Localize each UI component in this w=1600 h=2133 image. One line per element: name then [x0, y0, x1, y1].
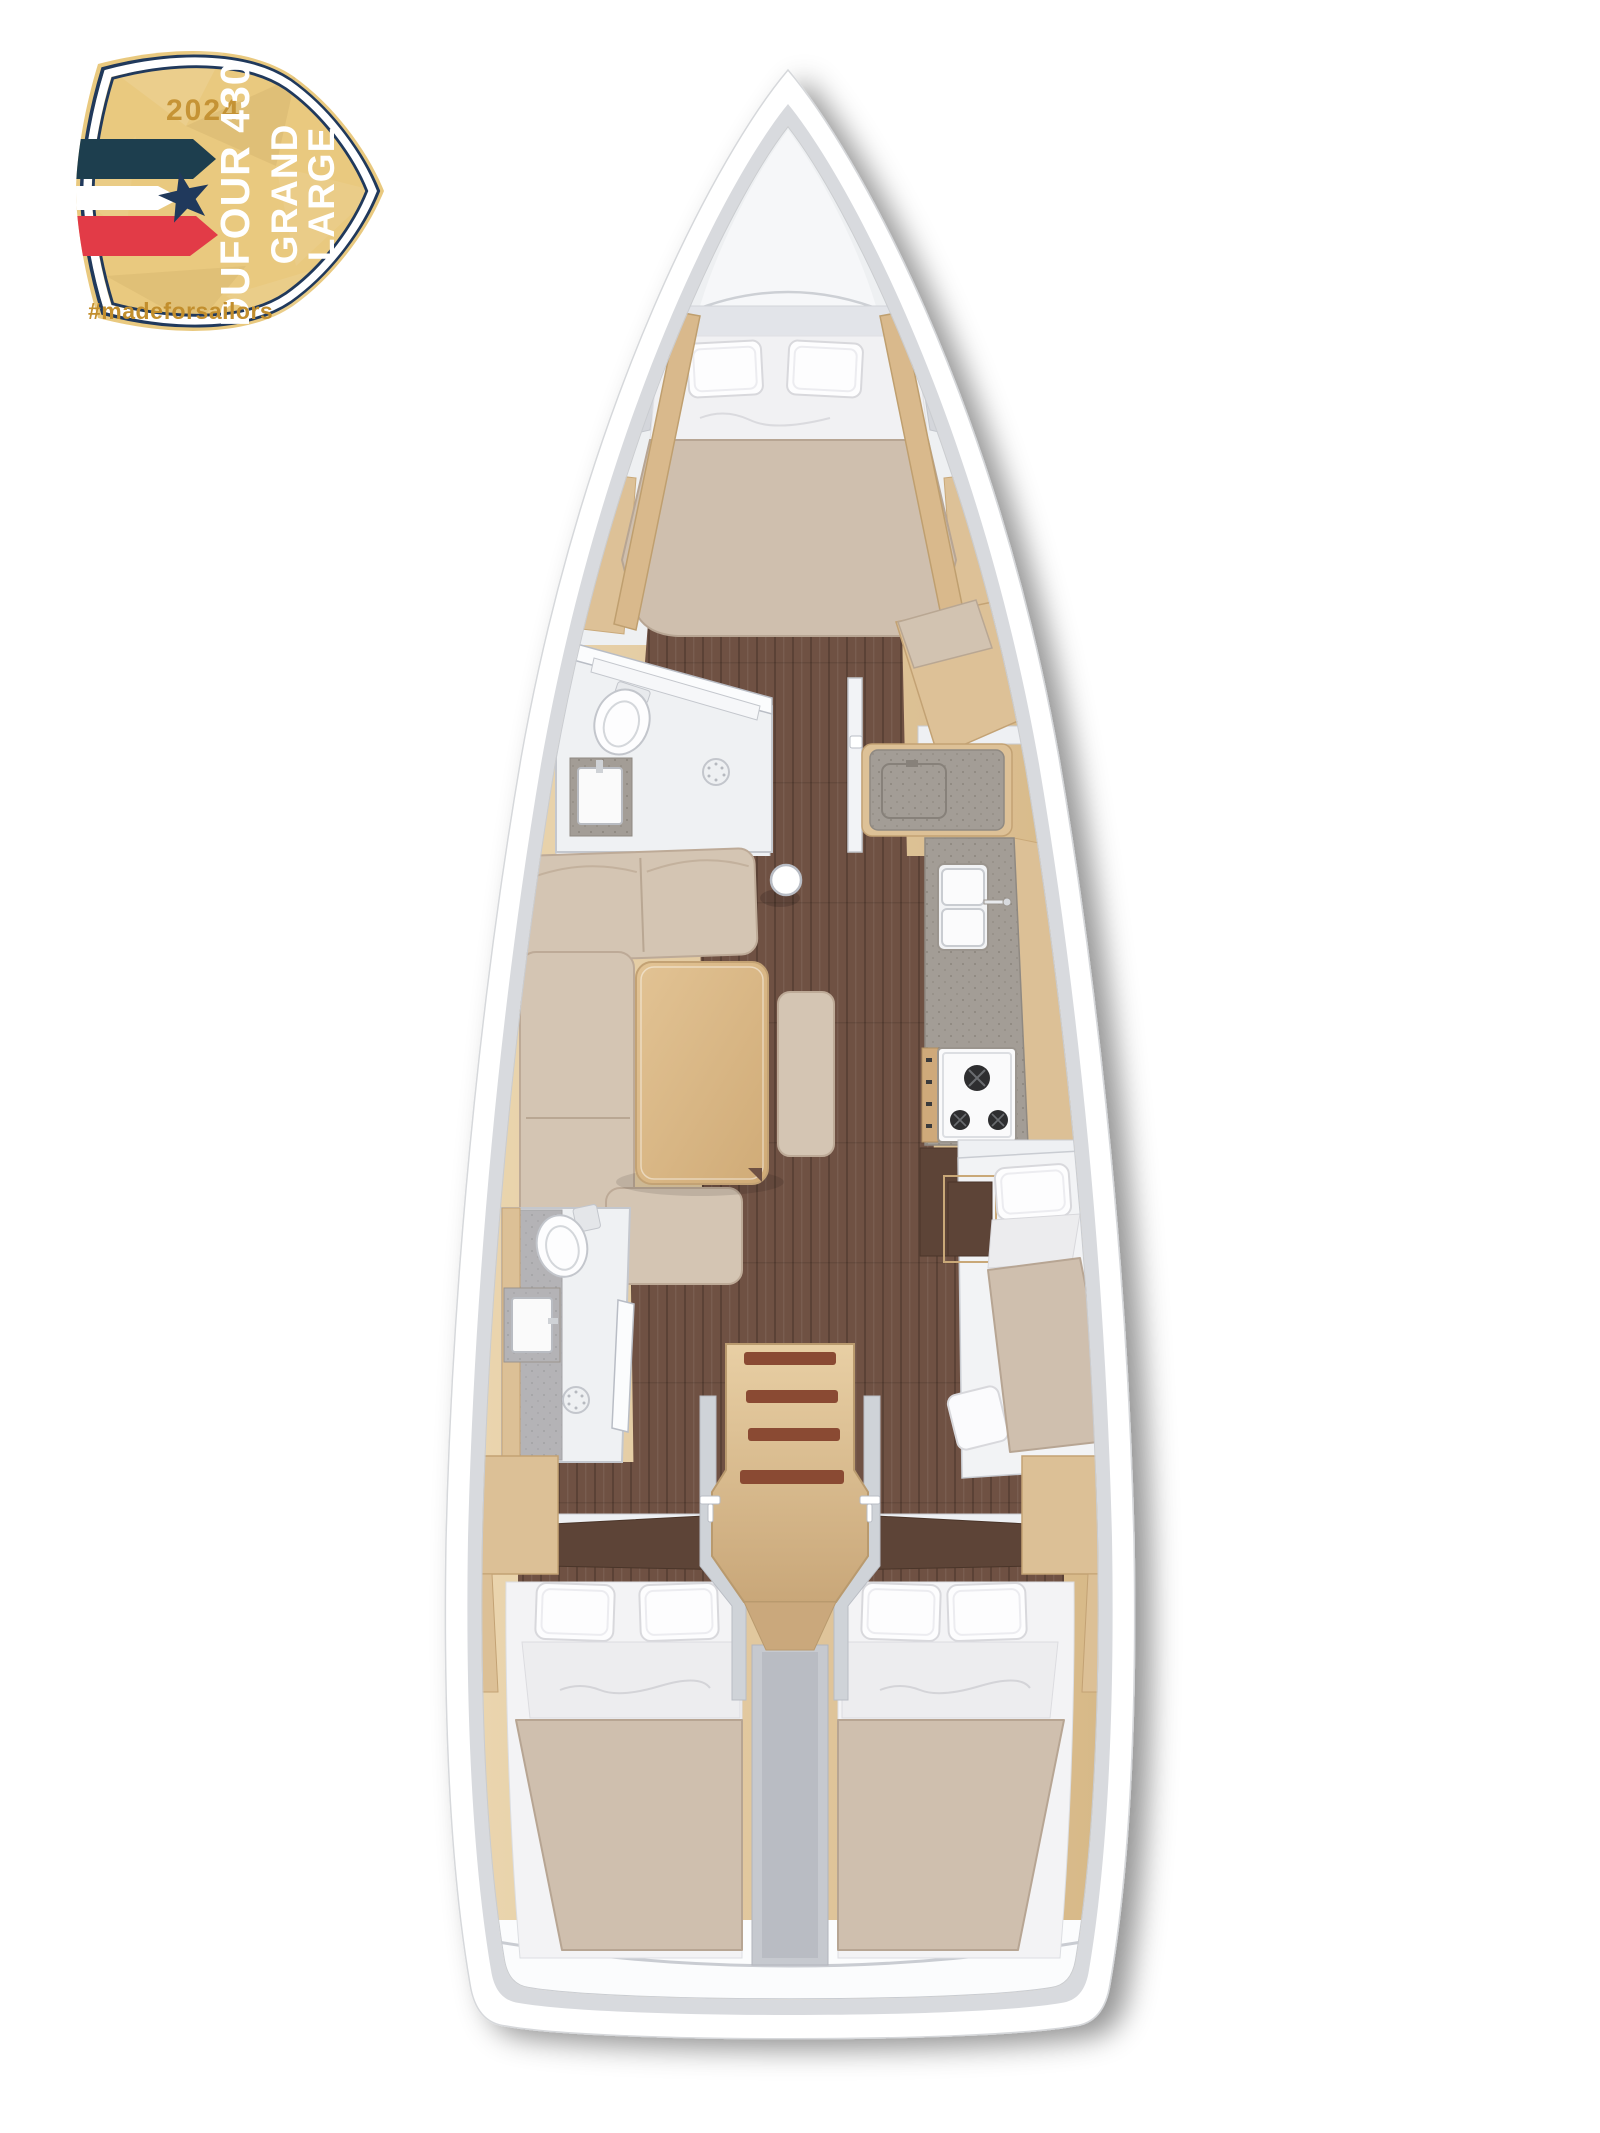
fore-cabin-door-handle — [850, 736, 862, 748]
vberth-pillow-starboard — [787, 340, 864, 398]
fore-cabin-door-wall — [848, 678, 862, 852]
aft-head-sink — [512, 1298, 552, 1352]
aft-starboard-pillow-1 — [861, 1583, 941, 1642]
engine-compartment-inner — [762, 1652, 818, 1958]
aft-head-shower-drain — [563, 1387, 589, 1413]
saloon-stool-bench — [778, 992, 834, 1156]
single-berth-pillow-1 — [994, 1163, 1071, 1220]
vberth-pillow-port — [687, 340, 764, 398]
aft-head-faucet — [548, 1318, 558, 1324]
fridge-lid-handle — [906, 760, 918, 767]
aft-port-pillow-1 — [535, 1583, 615, 1642]
forward-head-sink — [578, 768, 622, 824]
sofa-back-row — [522, 848, 758, 962]
page: 2024 DUFOUR 430 GRAND LARGE #madeforsail… — [0, 0, 1600, 2133]
forward-head-faucet — [596, 760, 603, 773]
aft-starboard-sheet — [842, 1642, 1058, 1718]
vberth-mattress — [622, 440, 956, 636]
mast-post — [771, 865, 801, 895]
aft-head — [502, 1204, 634, 1462]
galley-stove — [922, 1048, 1016, 1142]
wardrobe-opening — [948, 1182, 992, 1256]
yacht-floorplan — [0, 0, 1600, 2133]
aft-starboard-pillow-2 — [947, 1583, 1027, 1642]
aft-port-pillow-2 — [639, 1583, 719, 1642]
forward-head-shower-drain — [703, 759, 729, 785]
aft-port-sheet — [522, 1642, 740, 1718]
saloon-table — [636, 962, 768, 1184]
